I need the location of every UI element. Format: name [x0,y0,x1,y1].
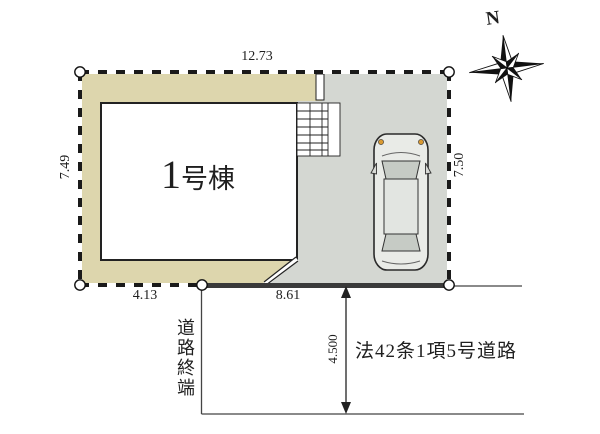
road-designation-label: 法42条1項5号道路 [355,342,517,361]
entrance-steps [297,103,340,156]
car-top-view-icon [371,134,431,270]
site-plan-drawing [0,0,600,434]
car-roof [384,179,418,234]
car-headlight-left [378,139,383,144]
boundary-marker [444,67,454,77]
north-label: N [485,8,501,29]
road-terminus-label: 道路終端 [176,318,194,398]
boundary-marker [75,67,85,77]
building-label: 1号棟 [138,155,258,195]
boundary-marker [197,280,207,290]
dimension-left: 7.49 [59,147,75,187]
dimension-road-width: 4.500 [326,324,340,374]
site-plan: 12.73 7.49 7.50 4.13 8.61 4.500 道路終端 法42… [0,0,600,434]
dimension-right: 7.50 [453,145,469,185]
dimension-bottom-right: 8.61 [258,289,318,303]
dimension-bottom-left: 4.13 [115,289,175,303]
boundary-marker [75,280,85,290]
car-headlight-right [418,139,423,144]
entrance-gate-opening [316,74,324,100]
car-windshield [382,161,420,179]
road-width-arrow [341,286,351,414]
boundary-marker [444,280,454,290]
car-rear-window [382,234,420,251]
compass-rose-icon [465,31,548,107]
dimension-top: 12.73 [227,50,287,64]
